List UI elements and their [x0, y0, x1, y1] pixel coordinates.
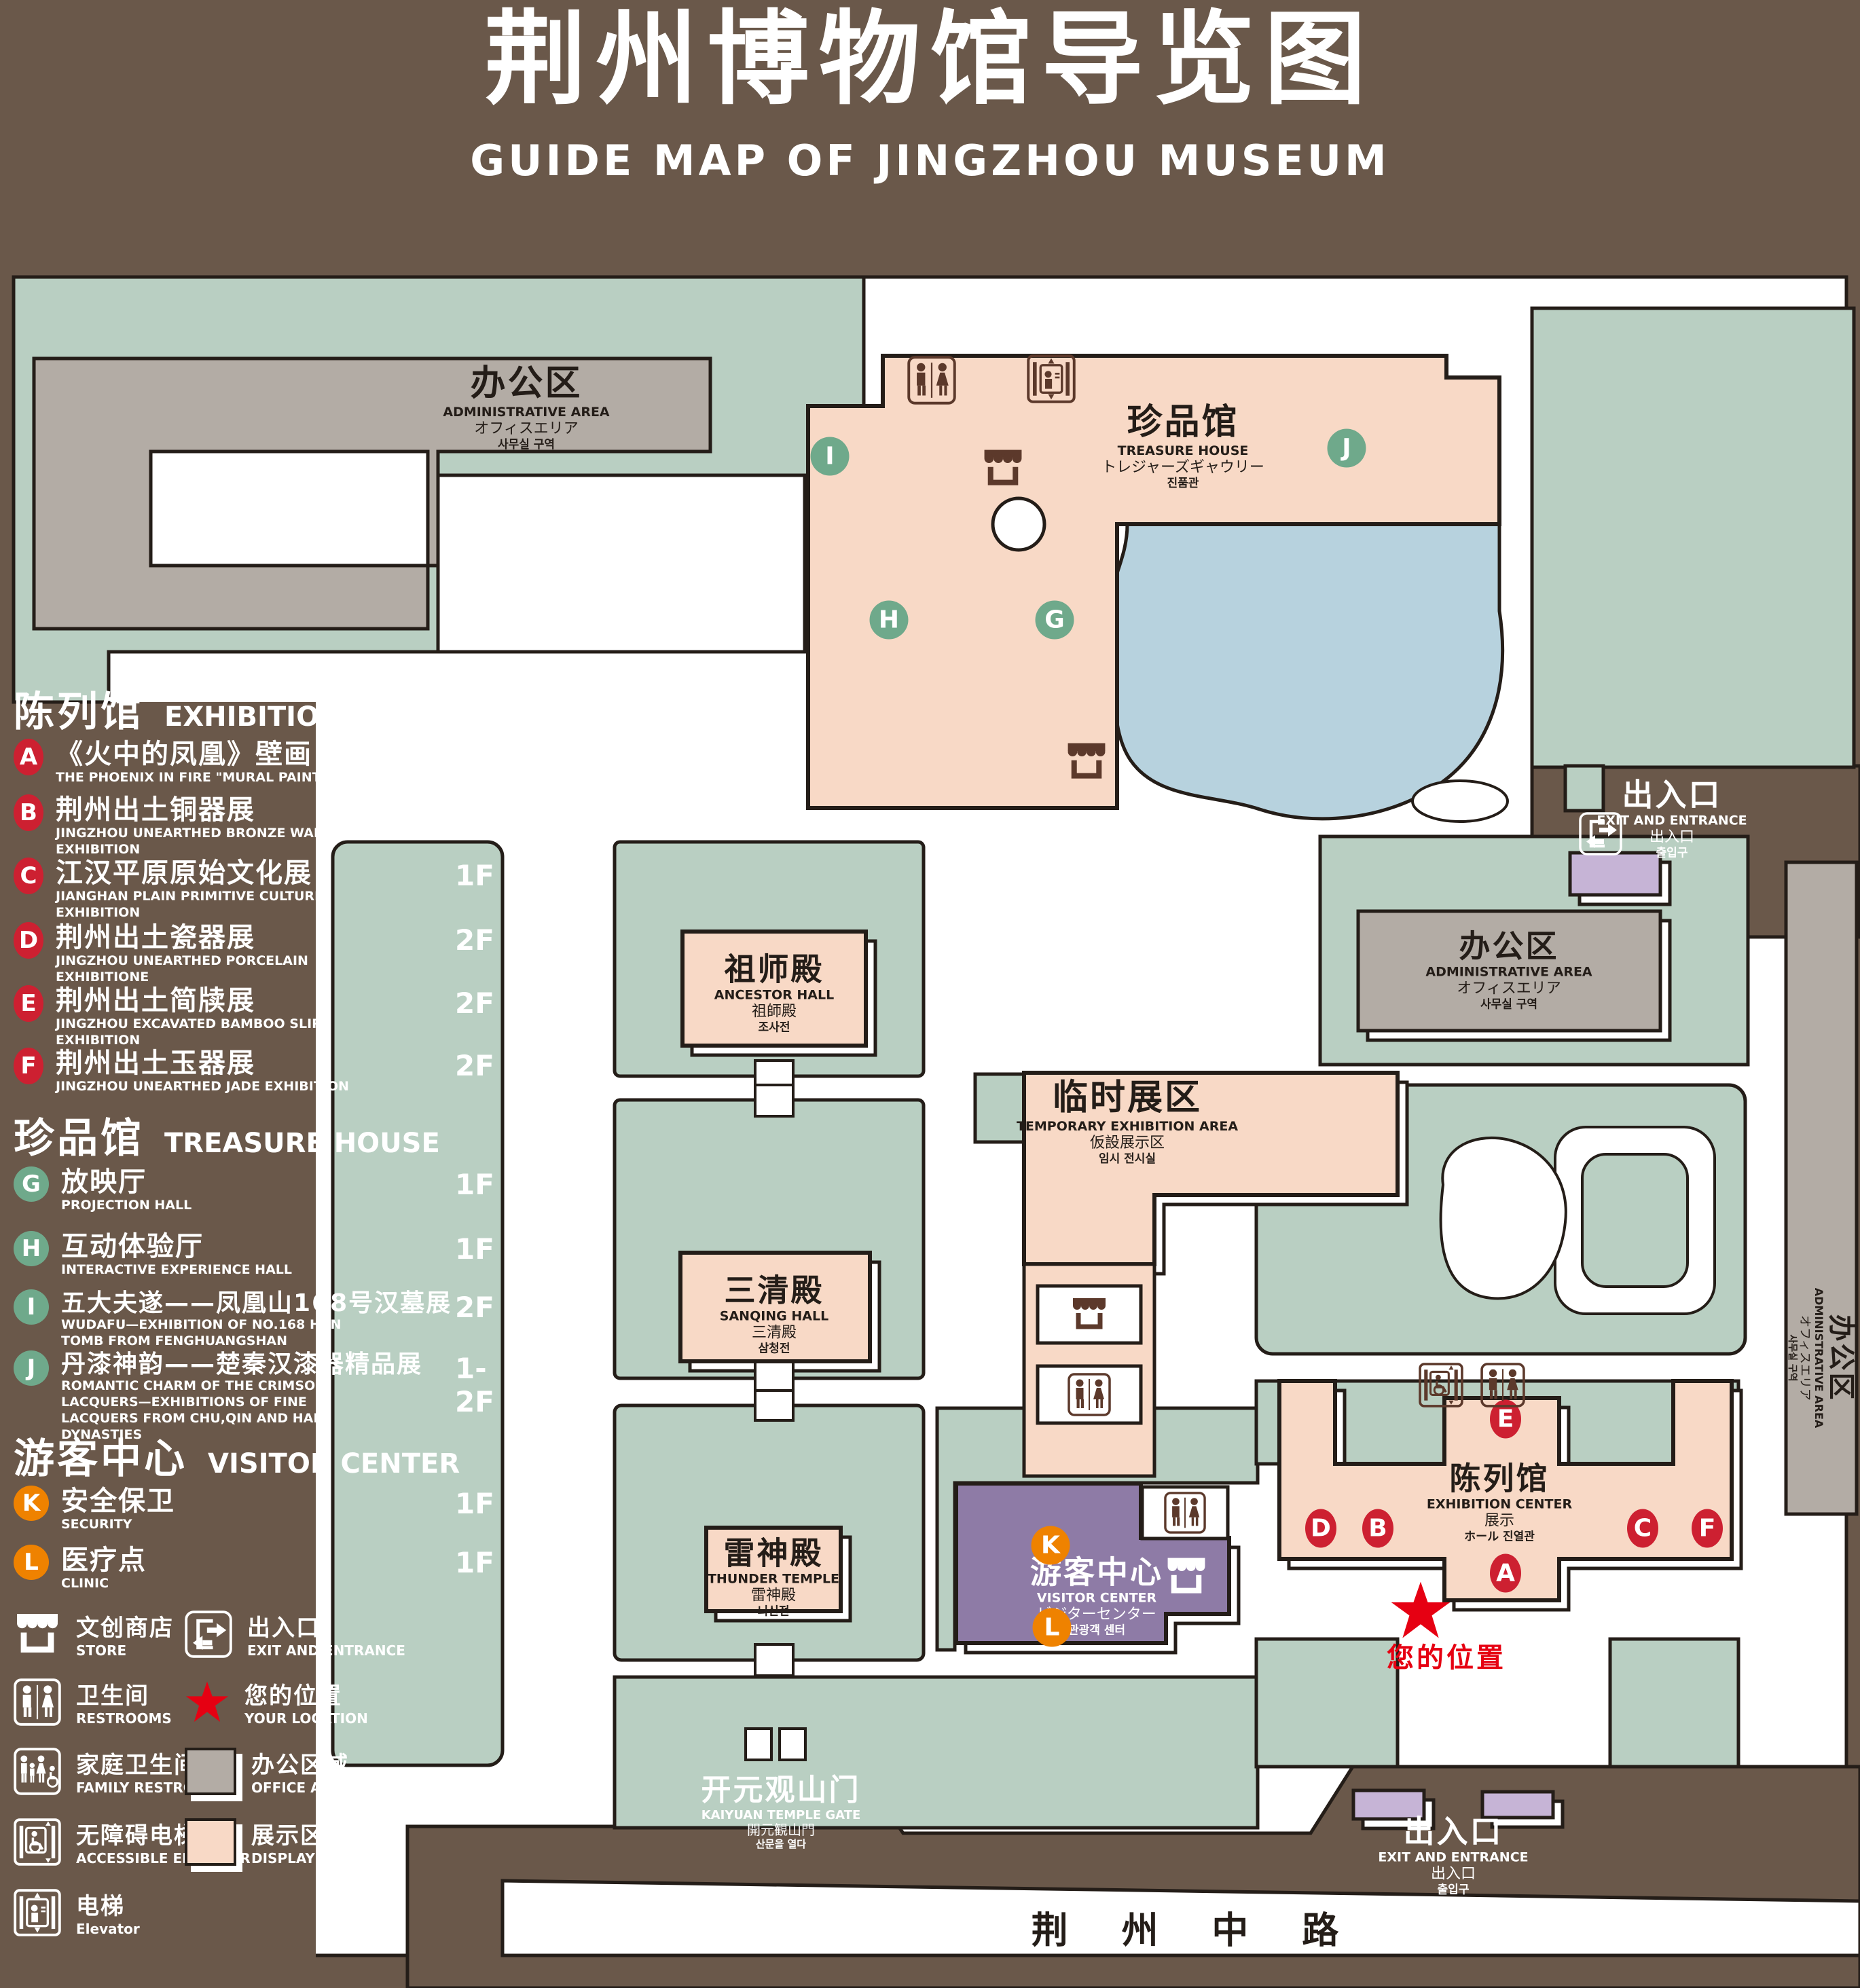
lawn-exhibition-southeast [1610, 1639, 1738, 1767]
store-icon [981, 448, 1025, 489]
map-marker-H: H [870, 601, 909, 640]
gate-door [780, 1729, 805, 1760]
label-ancestor-hall: 祖师殿ANCESTOR HALL 祖師殿조사전 [714, 951, 834, 1035]
guide-map-page: { "title": {"zh": "荆州博物馆导览图", "en": "GUI… [0, 0, 1860, 1988]
legend-item-F: F 荆州出土玉器展JINGZHOU UNEARTHED JADE EXHIBIT… [14, 1048, 503, 1095]
lawn-exhibition-southwest [1256, 1639, 1398, 1767]
label-exhibition-center: 陈列馆EXHIBITION CENTER 展示ホール 진열관 [1427, 1460, 1572, 1544]
elevator-icon [14, 1889, 61, 1936]
badge-K: K [14, 1486, 49, 1521]
door-gap [755, 1085, 793, 1116]
pond-island [1412, 781, 1508, 822]
badge-D: D [14, 922, 43, 959]
restroom-icon [907, 356, 956, 405]
store-icon [14, 1612, 61, 1657]
badge-C: C [14, 858, 43, 894]
legend-display-area: 展示区域DISPLAY AREA [185, 1817, 361, 1866]
your-location-star-icon [185, 1680, 230, 1725]
map-marker-B: B [1362, 1509, 1393, 1548]
map-marker-F: F [1692, 1509, 1723, 1548]
label-treasure-house: 珍品馆TREASURE HOUSE トレジャーズギャウリー진품관 [1101, 402, 1264, 490]
your-location-star-icon [1389, 1579, 1452, 1642]
legend-restrooms: 卫生间RESTROOMS [14, 1677, 172, 1727]
legend-item-G: G 放映厅PROJECTION HALL 1F [14, 1166, 503, 1214]
legend-item-E: E 荆州出土简牍展JINGZHOU EXCAVATED BAMBOO SLIPS… [14, 985, 503, 1049]
map-marker-A: A [1490, 1554, 1521, 1593]
badge-A: A [14, 739, 43, 775]
legend-item-C: C 江汉平原原始文化展JIANGHAN PLAIN PRIMITIVE CULT… [14, 858, 503, 921]
legend-item-K: K 安全保卫SECURITY 1F [14, 1486, 503, 1533]
badge-I: I [14, 1289, 49, 1325]
legend-item-A: A 《火中的凤凰》壁画THE PHOENIX IN FIRE "MURAL PA… [14, 739, 503, 786]
elevator-icon [1027, 354, 1076, 403]
lawn-northeast [1532, 308, 1854, 767]
family-restroom-icon [14, 1748, 61, 1795]
door-gap [755, 1644, 793, 1676]
map-marker-D: D [1305, 1509, 1336, 1548]
accessible-elevator-icon [1419, 1363, 1463, 1407]
legend-header-exhibition-center: 陈列馆EXHIBITION CENTER [14, 679, 471, 738]
legend-your-location: 您的位置YOUR LOCATION [185, 1677, 368, 1727]
legend-header-treasure-house: 珍品馆TREASURE HOUSE [14, 1105, 440, 1164]
legend-item-H: H 互动体验厅INTERACTIVE EXPERIENCE HALL 1F [14, 1231, 503, 1278]
badge-E: E [14, 985, 43, 1022]
garden-island [1582, 1154, 1688, 1287]
label-exit-south: 出入口EXIT AND ENTRANCE 出入口출입구 [1378, 1814, 1528, 1897]
map-marker-I: I [811, 437, 850, 476]
treasure-house-round-plaza [993, 498, 1044, 550]
label-admin-strip: 办公区 ADMINISTRATIVE AREA オフィスエリア 사무실 구역 [1786, 1288, 1857, 1429]
legend-item-L: L 医疗点CLINIC 1F [14, 1545, 503, 1592]
legend-office-area: 办公区域OFFICE AREA [185, 1746, 351, 1796]
badge-F: F [14, 1048, 43, 1084]
office-area-swatch [185, 1748, 236, 1795]
store-icon [1065, 741, 1108, 782]
restroom-icon [1480, 1363, 1525, 1407]
badge-B: B [14, 794, 43, 831]
legend-store: 文创商店STORE [14, 1609, 174, 1659]
admin-courtyard [151, 452, 428, 566]
badge-G: G [14, 1166, 49, 1202]
restroom-icon [14, 1678, 61, 1726]
legend-item-B: B 荆州出土铜器展JINGZHOU UNEARTHED BRONZE WARE … [14, 794, 503, 858]
map-marker-K: K [1032, 1526, 1070, 1565]
legend-exit: 出入口EXIT AND ENTRANCE [185, 1609, 405, 1659]
label-sanqing-hall: 三清殿SANQING HALL 三清殿삼청전 [720, 1272, 828, 1356]
label-admin-northwest: 办公区ADMINISTRATIVE AREA オフィスエリア사무실 구역 [443, 363, 609, 452]
legend-header-visitor-center: 游客中心VISITOR CENTER [14, 1426, 460, 1485]
map-marker-C: C [1627, 1509, 1658, 1548]
badge-H: H [14, 1231, 49, 1266]
exit-icon [185, 1610, 232, 1658]
map-marker-J: J [1328, 429, 1366, 468]
pond [1110, 524, 1502, 819]
label-thunder-temple: 雷神殿THUNDER TEMPLE 雷神殿뇌신전 [708, 1535, 839, 1619]
restroom-icon [1068, 1373, 1111, 1416]
label-road: 荆 州 中 路 [1032, 1900, 1359, 1954]
badge-J: J [14, 1350, 49, 1386]
map-marker-G: G [1036, 601, 1074, 640]
restroom-icon [1164, 1492, 1206, 1534]
admin-plaza [438, 475, 805, 652]
label-admin-east: 办公区ADMINISTRATIVE AREA オフィスエリア사무실 구역 [1425, 928, 1592, 1012]
garden-pond [1441, 1138, 1566, 1299]
legend-elevator: 电梯Elevator [14, 1888, 140, 1937]
legend-item-D: D 荆州出土瓷器展JINGZHOU UNEARTHED PORCELAIN EX… [14, 922, 503, 986]
exit-icon [1579, 812, 1622, 855]
store-icon [1165, 1556, 1208, 1597]
door-gap [755, 1391, 793, 1420]
display-area-swatch [185, 1818, 236, 1866]
legend-item-I: I 五大夫遂——凤凰山168号汉墓展WUDAFU—EXHIBITION OF N… [14, 1289, 503, 1350]
label-temporary-area: 临时展区TEMPORARY EXHIBITION AREA 仮設展示区임시 전시… [1017, 1078, 1238, 1166]
accessible-elevator-icon [14, 1818, 61, 1866]
label-kaiyuan-gate: 开元观山门 KAIYUAN TEMPLE GATE 開元観山門 산문을 열다 [701, 1773, 861, 1850]
map-marker-L: L [1033, 1608, 1072, 1647]
gate-door [746, 1729, 771, 1760]
badge-L: L [14, 1545, 49, 1580]
store-icon [1070, 1297, 1108, 1332]
